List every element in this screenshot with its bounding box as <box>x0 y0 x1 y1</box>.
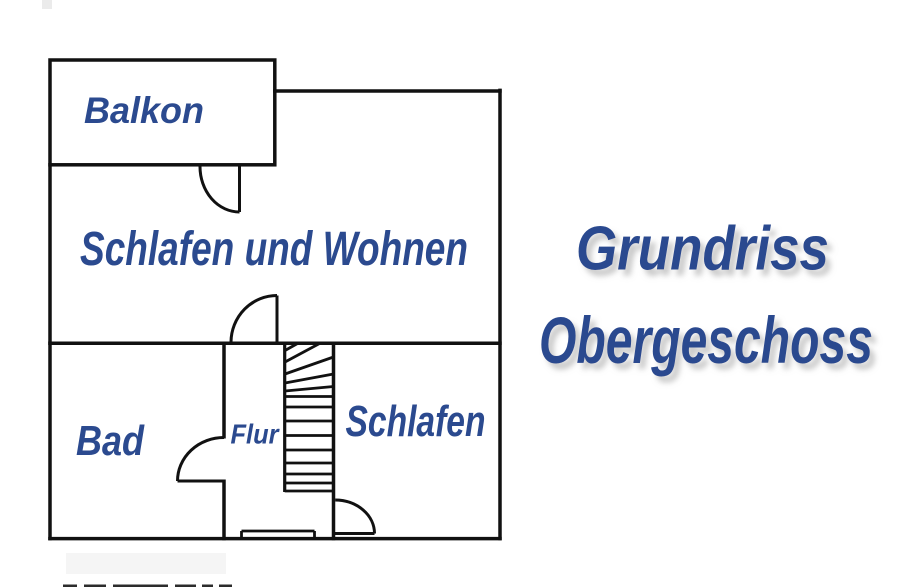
svg-text:Schlafen und Wohnen: Schlafen und Wohnen <box>80 223 468 276</box>
svg-text:Balkon: Balkon <box>84 90 204 131</box>
svg-text:Flur: Flur <box>231 419 281 450</box>
svg-text:Bad: Bad <box>76 417 145 464</box>
svg-text:Grundriss: Grundriss <box>576 215 829 284</box>
svg-text:Obergeschoss: Obergeschoss <box>539 303 873 377</box>
svg-text:Schlafen: Schlafen <box>346 397 486 446</box>
